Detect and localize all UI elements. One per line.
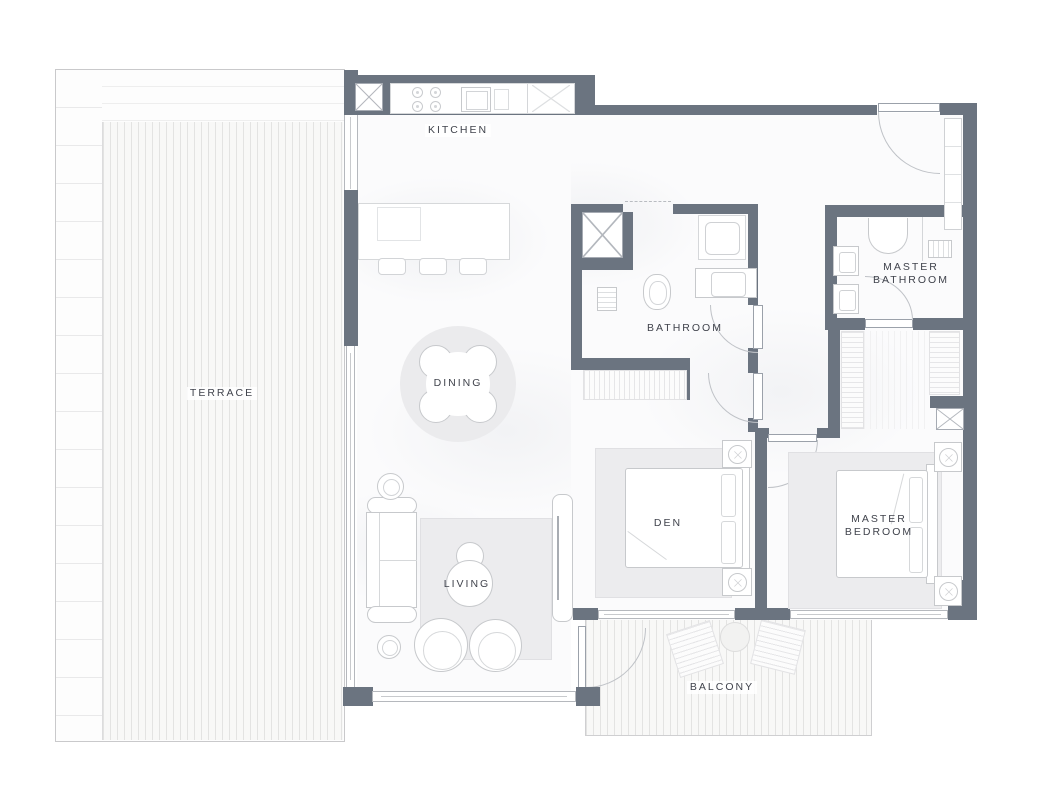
terrace-decking (102, 122, 343, 740)
label-terrace: TERRACE (187, 387, 257, 400)
mbath-shower-partition (922, 217, 923, 261)
living-plant-bottom (377, 635, 401, 659)
sofa-arm-bottom (367, 606, 417, 623)
wall-hall-bottom-right (817, 428, 840, 438)
wall-corner-living-right (576, 687, 600, 706)
floor-plan: KITCHEN TERRACE DINING BATHROOM MASTER B… (0, 0, 1054, 812)
bathroom-vanity (695, 268, 757, 298)
label-master-bedroom-line1: MASTER (845, 513, 913, 526)
wall-bath-top-b (673, 204, 758, 214)
shaft-bedroom (936, 408, 964, 430)
label-master-bathroom-line2: BATHROOM (873, 274, 949, 287)
den-nightstand-bottom (722, 568, 752, 596)
bedroom-nightstand-top (934, 442, 962, 472)
cabinet-divider-1 (527, 84, 528, 113)
label-living: LIVING (441, 578, 493, 591)
wall-wardrobe-divider (930, 396, 975, 408)
glass-wall-living-left (346, 346, 355, 687)
slider-living-bottom (372, 691, 576, 702)
window-kitchen-left (344, 115, 358, 190)
mbath-sink-2 (833, 284, 859, 314)
island-stool-3 (459, 258, 487, 275)
wall-corner-bottom-left (343, 687, 373, 706)
mbath-door-leaf (865, 319, 913, 328)
wall-wardrobe-left (828, 328, 840, 432)
entry-closet (944, 118, 962, 230)
balcony-terrace-door-leaf (578, 626, 586, 692)
entry-door-leaf (878, 103, 940, 112)
label-master-bedroom-line2: BEDROOM (845, 526, 913, 539)
bathroom-open-doorway (625, 201, 671, 202)
label-master-bedroom: MASTER BEDROOM (842, 513, 916, 539)
kitchen-module (494, 89, 509, 110)
bathroom-toilet (643, 274, 671, 310)
terrace-top-strip (102, 70, 344, 122)
wall-balcony-top-b (735, 608, 790, 620)
balcony-table (720, 622, 750, 652)
label-dining: DINING (431, 377, 486, 390)
label-kitchen: KITCHEN (425, 124, 491, 137)
label-balcony: BALCONY (687, 681, 757, 694)
wall-bath-left (571, 204, 582, 370)
wall-balcony-top-a (573, 608, 598, 620)
tv-console (552, 494, 573, 622)
den-closet (583, 370, 687, 400)
label-bathroom: BATHROOM (644, 322, 726, 335)
wall-bath-mid (571, 258, 633, 270)
kitchen-sink (461, 87, 491, 112)
wall-right-outer (963, 105, 977, 620)
wall-mbath-bottom-right (913, 318, 975, 330)
slider-bedroom-balcony (790, 610, 948, 619)
shaft-bathroom (582, 212, 623, 258)
bathroom-shower (698, 215, 746, 260)
bedroom-nightstand-bottom (934, 576, 962, 606)
label-master-bathroom: MASTER BATHROOM (870, 261, 952, 287)
wall-bath-bottom (571, 358, 690, 370)
bedroom-wardrobe-left (841, 331, 864, 429)
shaft-kitchen-left (355, 83, 383, 111)
wall-hall-top (595, 105, 877, 115)
bedroom-wardrobe-walkway (864, 331, 929, 429)
kitchen-island (358, 203, 510, 260)
living-plant-top (377, 473, 404, 500)
armchair-right (469, 619, 522, 672)
sofa-body (366, 512, 417, 608)
label-master-bathroom-line1: MASTER (873, 261, 949, 274)
mbath-sink-1 (833, 246, 859, 276)
bathroom-shower-head (597, 287, 617, 311)
label-den: DEN (651, 517, 685, 530)
terrace-planter-strip (56, 70, 102, 741)
island-stool-1 (378, 258, 406, 275)
island-stool-2 (419, 258, 447, 275)
den-nightstand-top (722, 440, 752, 468)
wall-left-mid (344, 190, 358, 346)
bedroom-wardrobe-right (929, 331, 960, 395)
mbath-shower-grate (928, 240, 952, 258)
cabinet-divider-2 (574, 84, 575, 113)
slider-den-balcony (598, 610, 735, 619)
cabinet-xbox (532, 85, 570, 112)
armchair-left (414, 618, 468, 672)
wall-den-bedroom-divider (755, 428, 767, 620)
